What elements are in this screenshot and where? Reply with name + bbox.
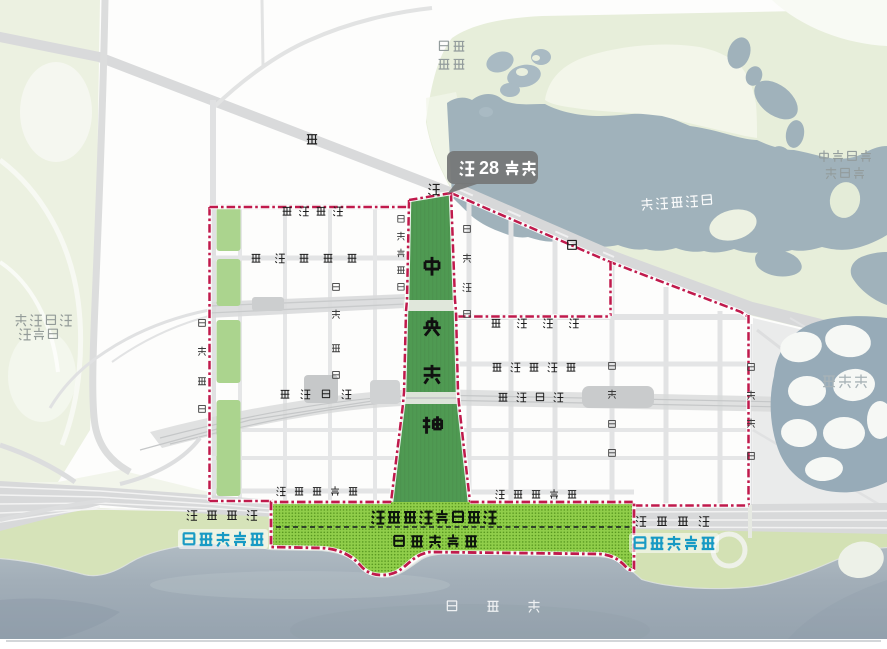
svg-text:28: 28 xyxy=(479,158,499,178)
